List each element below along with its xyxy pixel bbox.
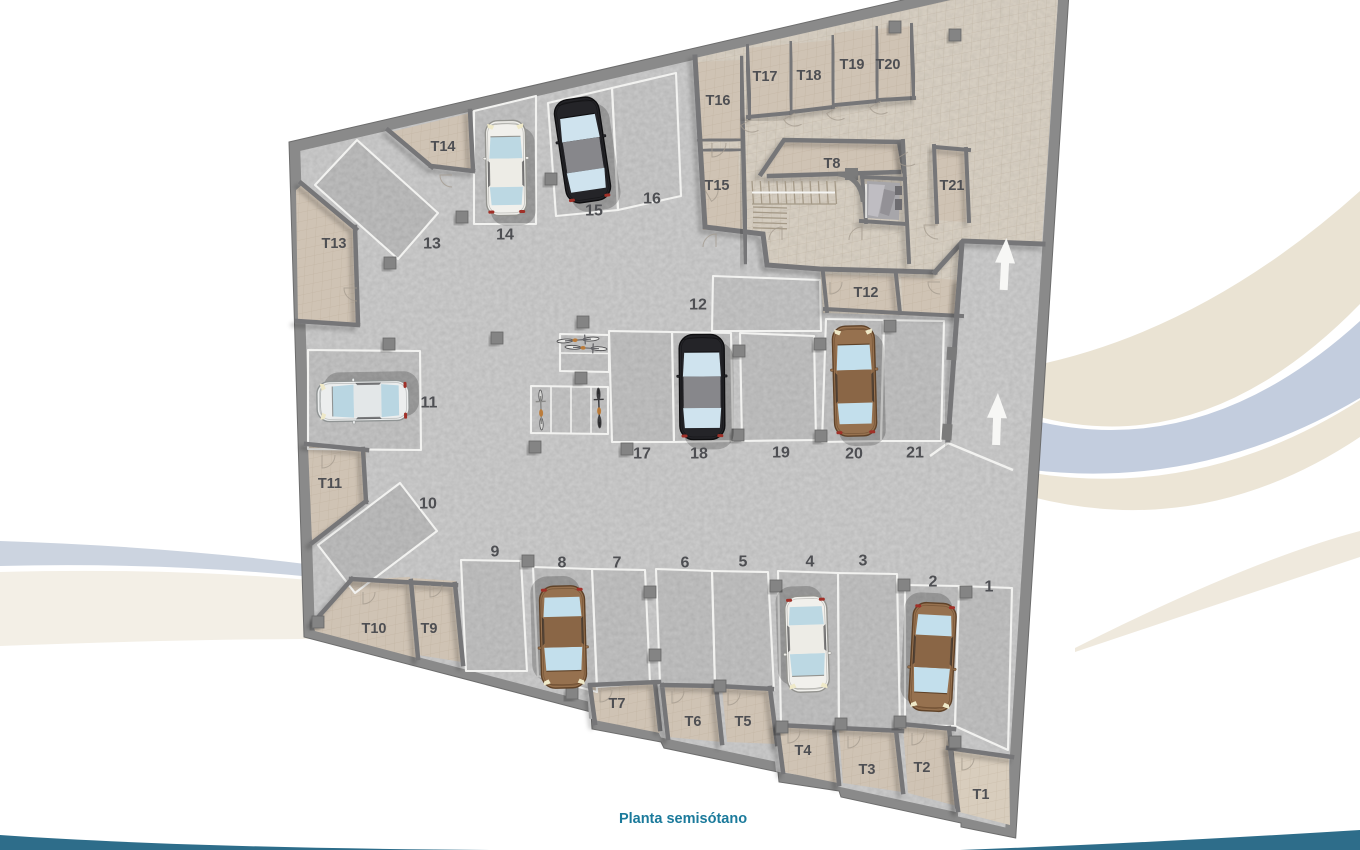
svg-text:5: 5 <box>739 554 748 571</box>
svg-text:9: 9 <box>491 544 500 561</box>
svg-text:19: 19 <box>772 445 790 462</box>
svg-text:8: 8 <box>558 555 567 572</box>
svg-text:T20: T20 <box>876 57 901 73</box>
svg-text:T19: T19 <box>840 57 865 73</box>
svg-text:T13: T13 <box>322 236 347 252</box>
svg-text:T11: T11 <box>318 476 342 492</box>
svg-text:11: 11 <box>421 395 438 412</box>
svg-text:T7: T7 <box>609 696 626 712</box>
svg-text:T6: T6 <box>685 714 702 730</box>
svg-text:T15: T15 <box>705 178 730 194</box>
svg-text:T2: T2 <box>914 760 931 776</box>
svg-text:13: 13 <box>423 236 441 253</box>
svg-text:21: 21 <box>906 445 924 462</box>
svg-text:T10: T10 <box>362 621 387 637</box>
svg-text:T18: T18 <box>797 68 822 84</box>
svg-text:18: 18 <box>690 446 708 463</box>
svg-text:7: 7 <box>613 555 622 572</box>
svg-text:6: 6 <box>681 555 690 572</box>
svg-text:T8: T8 <box>824 156 841 172</box>
svg-text:3: 3 <box>859 553 868 570</box>
svg-text:T3: T3 <box>859 762 876 778</box>
svg-text:16: 16 <box>643 191 661 208</box>
svg-text:T12: T12 <box>854 285 879 301</box>
svg-text:15: 15 <box>585 203 603 220</box>
svg-text:20: 20 <box>845 446 863 463</box>
svg-text:10: 10 <box>419 496 437 513</box>
svg-text:T1: T1 <box>973 787 990 803</box>
svg-text:17: 17 <box>633 446 651 463</box>
svg-text:T5: T5 <box>735 714 752 730</box>
svg-text:12: 12 <box>689 297 707 314</box>
svg-text:4: 4 <box>806 554 815 571</box>
svg-text:T9: T9 <box>421 621 438 637</box>
svg-text:Planta semisótano: Planta semisótano <box>619 811 747 827</box>
svg-text:14: 14 <box>496 227 514 244</box>
svg-text:T17: T17 <box>753 69 778 85</box>
svg-text:T21: T21 <box>940 178 965 194</box>
svg-text:T16: T16 <box>706 93 731 109</box>
svg-text:2: 2 <box>929 574 938 591</box>
svg-text:T14: T14 <box>431 139 456 155</box>
svg-text:T4: T4 <box>795 743 812 759</box>
svg-text:1: 1 <box>985 579 994 596</box>
